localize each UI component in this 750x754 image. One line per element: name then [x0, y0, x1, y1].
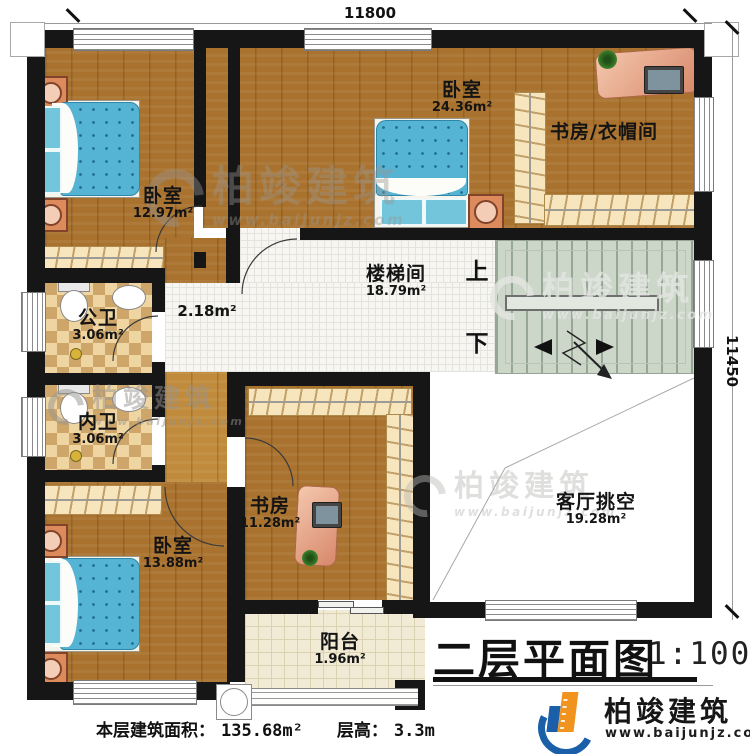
room-name: 书房/衣帽间	[550, 122, 658, 143]
brand-website: www.baijunjz.com	[605, 726, 750, 741]
floor-living-void	[430, 372, 694, 602]
sliding-door-panel	[350, 607, 384, 614]
room-name: 卧室	[432, 80, 492, 101]
room-label-stairwell: 楼梯间 18.79m²	[366, 264, 426, 300]
floor-hallway	[165, 372, 227, 482]
wall-segment	[694, 346, 712, 618]
wall-segment	[27, 470, 165, 482]
wall-segment	[27, 268, 165, 283]
height-note-label: 层高：	[337, 716, 388, 741]
wall-segment	[27, 373, 165, 385]
dimension-line-top	[45, 23, 712, 24]
room-label-corridor: 2.18m²	[177, 303, 236, 320]
column-round	[216, 684, 252, 720]
wall-segment	[192, 30, 304, 48]
window	[485, 600, 637, 621]
sliding-door-panel	[318, 601, 354, 608]
window	[21, 292, 46, 352]
window	[21, 397, 46, 457]
closet	[386, 414, 414, 602]
plant	[302, 550, 318, 566]
room-label-inner-bath: 内卫 3.06m²	[72, 412, 123, 448]
dimension-right-value: 11450	[723, 331, 741, 391]
window	[304, 28, 432, 51]
wall-segment	[413, 602, 485, 618]
wall-segment	[45, 30, 73, 48]
column-round-inner	[220, 688, 248, 716]
wall-segment	[227, 386, 245, 437]
brand-name: 柏竣建筑	[604, 690, 732, 730]
area-note-label: 本层建筑面积：	[96, 716, 215, 741]
stairs-up-label: 上	[466, 252, 489, 286]
window	[693, 260, 714, 348]
room-name: 卧室	[133, 186, 193, 207]
title-underline-thin	[433, 685, 713, 686]
balcony-railing	[238, 688, 418, 706]
dimension-line-right	[732, 28, 733, 620]
wall-segment	[413, 372, 430, 602]
bed-pillow	[380, 198, 424, 226]
closet-divider	[514, 92, 546, 224]
wall-segment	[300, 228, 694, 240]
height-note-value: 3.3m	[394, 721, 435, 741]
wall-segment	[430, 30, 712, 48]
room-area: 19.28m²	[556, 513, 636, 528]
floor-drain	[70, 348, 82, 360]
plan-scale: 1:100	[648, 636, 750, 672]
dimension-tick	[683, 8, 698, 23]
floor-plan-canvas: 卧室 12.97m² 卧室 24.36m² 书房/衣帽间 楼梯间 18.79m²…	[0, 0, 750, 754]
wall-segment	[27, 455, 45, 700]
room-area: 1.96m²	[314, 653, 365, 668]
stairs-handrail	[505, 295, 659, 311]
window	[693, 97, 714, 192]
room-name: 卧室	[143, 536, 203, 557]
wall-segment	[152, 283, 165, 312]
room-label-bedroom-nw: 卧室 12.97m²	[133, 186, 193, 222]
room-area: 2.18m²	[177, 303, 236, 320]
room-label-bedroom-n: 卧室 24.36m²	[432, 80, 492, 116]
plant	[598, 50, 617, 69]
computer-monitor	[312, 502, 342, 528]
floor-corridor	[165, 283, 495, 372]
room-label-public-bath: 公卫 3.06m²	[72, 308, 123, 344]
wall-segment	[245, 600, 318, 614]
wall-segment	[635, 602, 712, 618]
room-area: 24.36m²	[432, 101, 492, 116]
computer-monitor	[644, 66, 684, 94]
room-label-study: 书房 11.28m²	[240, 496, 300, 532]
room-name: 阳台	[314, 632, 365, 653]
closet	[36, 246, 164, 270]
window	[73, 680, 197, 705]
area-note-value: 135.68m²	[221, 721, 303, 741]
room-name: 楼梯间	[366, 264, 426, 285]
monitor-screen	[648, 70, 680, 90]
closet	[248, 388, 412, 416]
room-area: 18.79m²	[366, 285, 426, 300]
room-name: 书房	[240, 496, 300, 517]
monitor-screen	[316, 506, 338, 524]
wall-segment	[27, 682, 75, 700]
bed-pillow	[424, 198, 468, 226]
wall-segment	[382, 600, 413, 614]
sink	[112, 387, 146, 412]
room-label-living-void: 客厅挑空 19.28m²	[556, 492, 636, 528]
closet	[544, 194, 696, 226]
room-name: 公卫	[72, 308, 123, 329]
room-area: 12.97m²	[133, 207, 193, 222]
wall-segment	[694, 190, 712, 260]
dimension-top-value: 11800	[310, 4, 430, 22]
nightstand	[468, 194, 504, 230]
closet	[36, 485, 162, 515]
wall-segment	[152, 385, 165, 417]
wall-segment	[194, 30, 206, 207]
room-label-study-cloak: 书房/衣帽间	[550, 122, 658, 143]
dimension-tick	[66, 8, 81, 23]
title-underline	[433, 677, 697, 682]
room-area: 3.06m²	[72, 329, 123, 344]
window	[73, 28, 194, 51]
wall-segment	[227, 372, 413, 386]
wall-segment	[228, 48, 240, 228]
room-area: 13.88m²	[143, 557, 203, 572]
room-name: 内卫	[72, 412, 123, 433]
floor-drain	[70, 450, 82, 462]
room-name: 客厅挑空	[556, 492, 636, 513]
nightstand-lamp	[474, 200, 498, 224]
wall-segment	[226, 228, 240, 283]
wall-segment	[27, 30, 45, 292]
stairs-down-label: 下	[466, 324, 489, 358]
axis-marker	[10, 22, 45, 57]
floor-notes: 本层建筑面积：135.68m²层高：3.3m	[96, 716, 435, 741]
room-area: 3.06m²	[72, 433, 123, 448]
room-area: 11.28m²	[240, 517, 300, 532]
room-label-bedroom-sw: 卧室 13.88m²	[143, 536, 203, 572]
room-label-balcony: 阳台 1.96m²	[314, 632, 365, 668]
wall-segment	[194, 252, 206, 268]
